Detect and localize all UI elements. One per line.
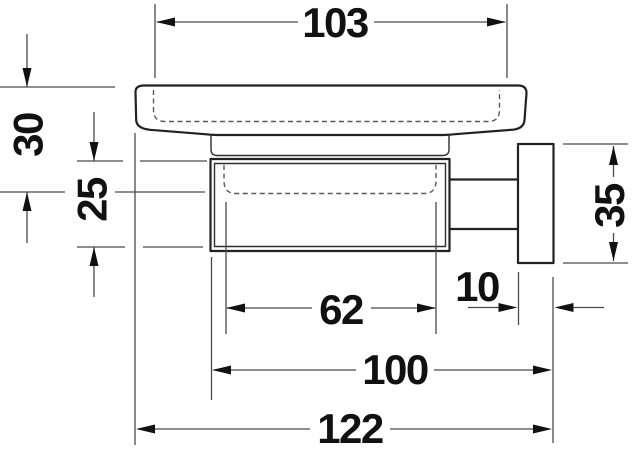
holder-recess-hidden-edge <box>224 165 436 194</box>
arrowhead-up-icon <box>609 146 618 165</box>
holder-body-inner-wall <box>215 164 446 247</box>
arrowhead-down-icon <box>90 142 99 161</box>
dimension-lines <box>0 4 628 445</box>
dish-recess-hidden-edge <box>154 90 500 122</box>
arrowhead-right-icon <box>487 18 506 27</box>
arrowhead-left-icon <box>212 366 231 375</box>
dim-label-wall-plate-height: 35 <box>586 183 633 228</box>
holder-body-outline <box>211 159 450 251</box>
arrowhead-right-icon <box>499 303 518 312</box>
dim-label-overall-depth: 122 <box>317 405 383 452</box>
dim-label-dish-front-height: 30 <box>5 113 52 157</box>
soap-dish-holder-dimension-drawing: 103 30 25 35 62 10 100 122 <box>0 0 640 456</box>
arrowhead-left-icon <box>156 18 175 27</box>
arrowhead-right-icon <box>417 304 436 313</box>
arrowhead-up-icon <box>23 192 32 211</box>
dim-label-holder-inner-depth: 62 <box>319 286 363 333</box>
arrowhead-up-icon <box>90 247 99 266</box>
arrowhead-left-icon <box>226 304 245 313</box>
dimension-labels: 103 30 25 35 62 10 100 122 <box>5 0 634 452</box>
dim-label-wall-plate-thickness: 10 <box>455 263 499 310</box>
arrowhead-right-icon <box>533 425 552 434</box>
technical-drawing-canvas: 103 30 25 35 62 10 100 122 <box>0 0 640 456</box>
dim-label-holder-front-height: 25 <box>69 177 116 222</box>
arrowhead-left-icon <box>555 303 574 312</box>
arrowhead-down-icon <box>609 242 618 261</box>
arrowhead-right-icon <box>533 366 552 375</box>
dish-tray-outline <box>136 86 527 136</box>
product-outline <box>136 86 554 264</box>
dim-label-dish-top-width: 103 <box>302 0 368 46</box>
wall-plate-outline <box>518 144 554 263</box>
dim-label-depth-excluding-plate: 100 <box>362 346 428 393</box>
arrowhead-down-icon <box>23 68 32 87</box>
dish-neck-outline <box>211 135 449 156</box>
arrowhead-left-icon <box>136 425 155 434</box>
